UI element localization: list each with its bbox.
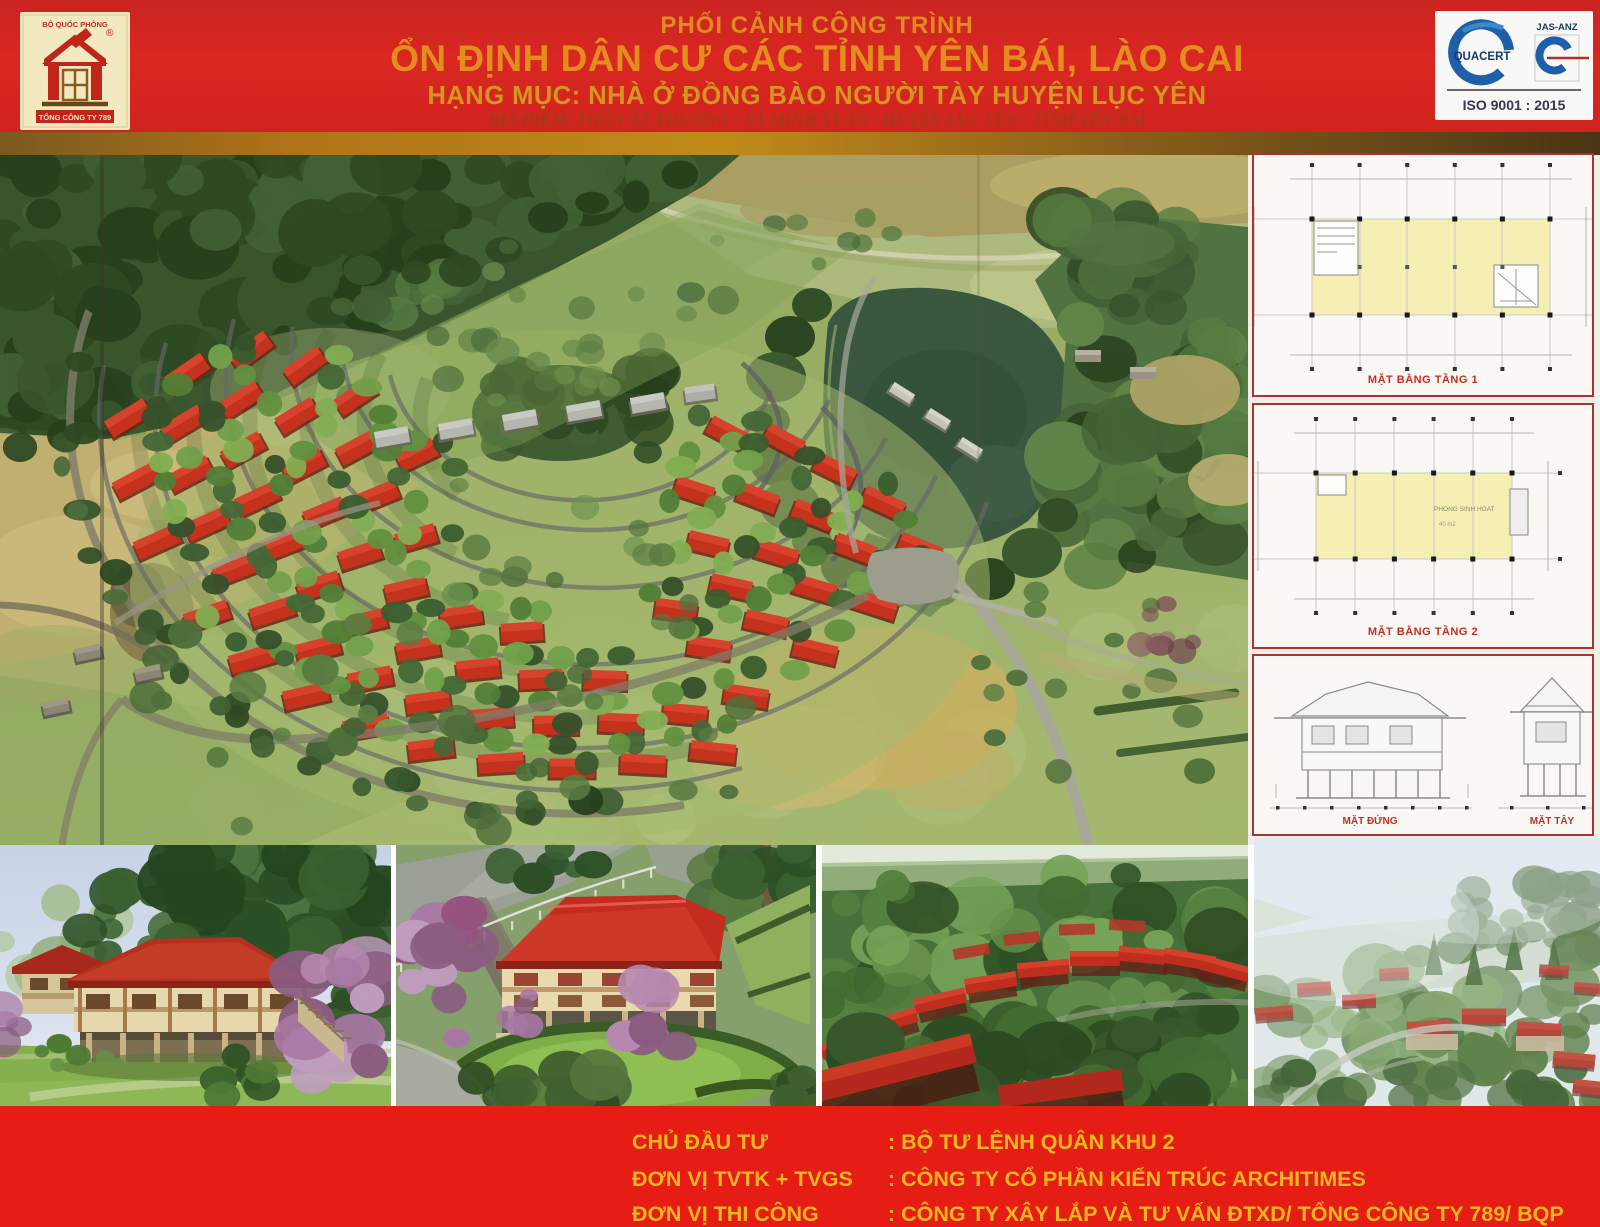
svg-text:BỘ QUỐC PHÒNG: BỘ QUỐC PHÒNG <box>42 19 108 29</box>
svg-text:40 m2: 40 m2 <box>1439 522 1456 528</box>
svg-text:®: ® <box>106 28 114 39</box>
svg-text:QUACERT: QUACERT <box>1454 51 1511 63</box>
svg-text:PHONG SINH HOAT: PHONG SINH HOAT <box>1434 506 1495 513</box>
svg-text:TỔNG CÔNG TY 789: TỔNG CÔNG TY 789 <box>39 113 111 122</box>
svg-text:MẶT BẰNG TẦNG 1: MẶT BẰNG TẦNG 1 <box>1368 373 1478 386</box>
svg-text:ISO 9001 : 2015: ISO 9001 : 2015 <box>1463 97 1566 113</box>
svg-text:MẶT BẰNG TẦNG 2: MẶT BẰNG TẦNG 2 <box>1368 625 1478 638</box>
svg-text:MẶT TÂY: MẶT TÂY <box>1530 814 1575 827</box>
svg-text:MẶT ĐỨNG: MẶT ĐỨNG <box>1343 814 1398 827</box>
svg-text:JAS-ANZ: JAS-ANZ <box>1536 22 1577 33</box>
